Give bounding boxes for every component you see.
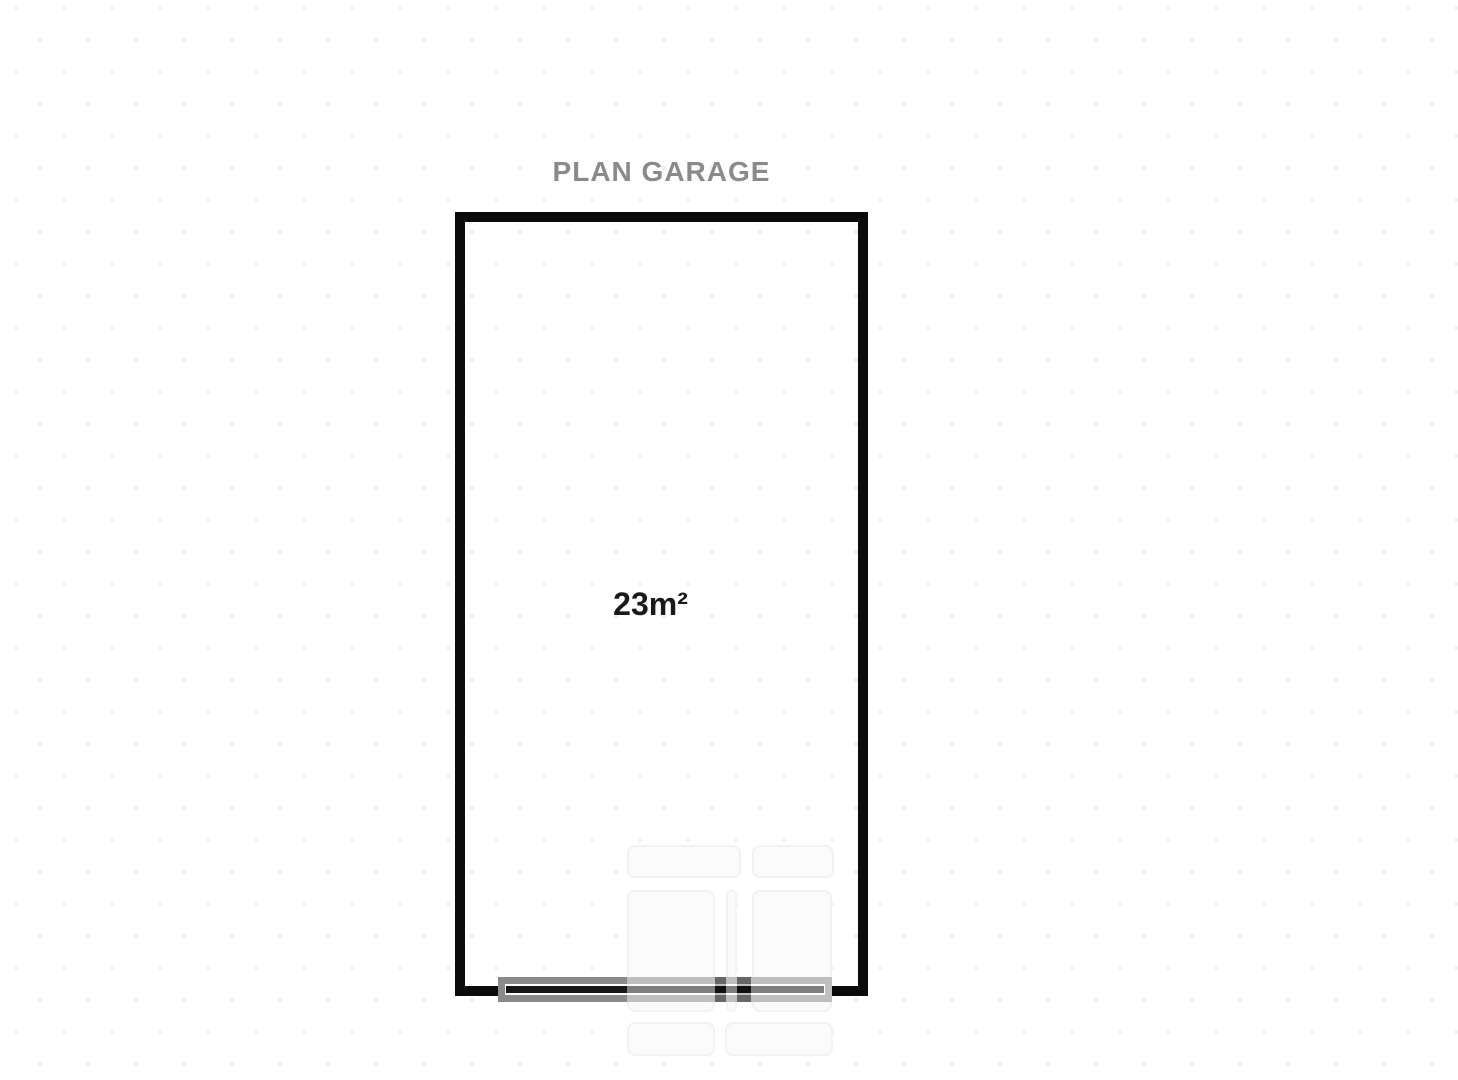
watermark-overlay [726, 977, 737, 1002]
watermark-gap-overlay [737, 977, 751, 1002]
garage-door [498, 977, 832, 1002]
area-label: 23m² [444, 586, 857, 623]
watermark-overlay [751, 977, 832, 1002]
plan-title: PLAN GARAGE [455, 156, 868, 188]
watermark-logo-block [725, 1022, 833, 1056]
watermark-overlay [627, 977, 715, 1002]
watermark-logo-block [627, 1022, 715, 1056]
watermark-gap-overlay [715, 977, 726, 1002]
floor-plan-page: { "plan": { "title": "PLAN GARAGE", "tit… [0, 0, 1458, 1080]
